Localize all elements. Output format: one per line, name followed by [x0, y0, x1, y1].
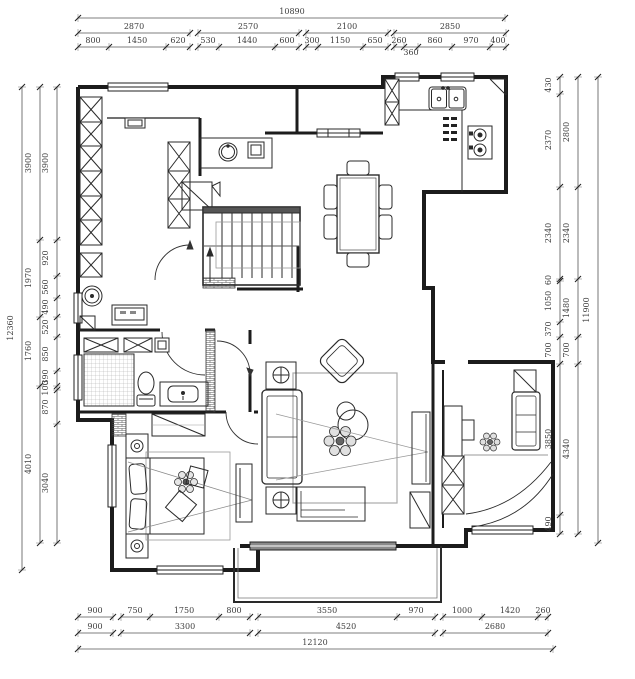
window-icon — [74, 293, 82, 323]
dim-label: 12360 — [7, 315, 15, 340]
dim-label: 530 — [200, 37, 215, 45]
cabinet-diagonal-icon — [410, 492, 430, 528]
pantry-counter — [182, 138, 272, 210]
appliance-icon — [112, 305, 147, 325]
window-icon — [472, 526, 533, 534]
window-icon — [108, 83, 168, 91]
dim-label: 12120 — [302, 639, 327, 647]
dim-label: 490 — [42, 299, 50, 314]
dim-label: 2850 — [440, 23, 460, 31]
dim-label: 3300 — [175, 623, 195, 631]
dining-set — [324, 161, 392, 267]
dim-label: 2680 — [485, 623, 505, 631]
dim-label: 11900 — [583, 297, 591, 322]
desk-icon — [444, 406, 474, 456]
window-icon — [74, 355, 82, 400]
plant-decor-icon — [480, 433, 500, 451]
wardrobe-hatch — [442, 456, 464, 514]
living-room — [262, 337, 430, 528]
wardrobe-cabinets — [80, 97, 190, 277]
dim-label: 520 — [42, 319, 50, 334]
counter-edge — [399, 110, 462, 192]
balcony-window-icon — [250, 542, 396, 550]
dim-label: 2870 — [124, 23, 144, 31]
door-arc — [217, 341, 253, 376]
dim-label: 870 — [42, 399, 50, 414]
toilet-icon — [137, 372, 155, 406]
plant-decor-icon — [324, 427, 356, 456]
tv-cabinet-icon — [412, 412, 430, 484]
door-arc — [226, 412, 258, 444]
laundry-room — [80, 286, 147, 330]
dim-label: 900 — [87, 623, 102, 631]
dim-label: 10890 — [279, 8, 304, 16]
dim-label: 970 — [463, 37, 478, 45]
bedroom — [126, 414, 252, 558]
dim-label: 1760 — [25, 341, 33, 361]
nightstand-icon — [126, 534, 148, 558]
wardrobe-icon — [152, 414, 205, 436]
side-table-icon — [266, 362, 296, 389]
sofa-icon — [512, 392, 540, 450]
washing-machine-icon — [82, 286, 102, 306]
cooktop-icon — [248, 142, 264, 158]
dim-label: 1440 — [237, 37, 257, 45]
dim-label: 1450 — [127, 37, 147, 45]
dim-label: 360 — [403, 49, 418, 57]
dim-label: 1970 — [25, 268, 33, 288]
stair-direction-arrow — [207, 248, 213, 282]
dim-label: 1480 — [563, 298, 571, 318]
window-icon — [157, 566, 223, 574]
tv-cabinet-icon — [236, 464, 252, 522]
dim-label: 370 — [545, 321, 553, 336]
dim-label: 300 — [304, 37, 319, 45]
sliding-door[interactable] — [317, 129, 360, 137]
dim-label: 650 — [367, 37, 382, 45]
dim-label: 620 — [170, 37, 185, 45]
dim-label: 1420 — [500, 607, 520, 615]
dim-label: 800 — [85, 37, 100, 45]
floor-plan-canvas: 1089028702570210028508001450620530144060… — [0, 0, 635, 679]
study-room — [442, 370, 553, 527]
dim-label: 1750 — [174, 607, 194, 615]
vent-marks — [443, 117, 457, 141]
double-sink-icon — [429, 87, 466, 110]
round-sink-icon — [219, 143, 237, 161]
cabinet-diagonal-icon — [514, 370, 536, 392]
interior-walls — [78, 87, 443, 546]
dim-label: 860 — [427, 37, 442, 45]
nightstand-icon — [126, 434, 148, 458]
dim-label: 1050 — [545, 291, 553, 311]
dim-label: 560 — [42, 279, 50, 294]
dim-label: 600 — [279, 37, 294, 45]
door-arc — [155, 241, 193, 280]
column-hatch — [385, 79, 399, 125]
window-icon — [108, 445, 116, 507]
dim-label: 2100 — [337, 23, 357, 31]
kitchen — [385, 79, 506, 192]
curtain-arcs — [464, 455, 553, 527]
dim-label: 800 — [226, 607, 241, 615]
dim-label: 490 — [545, 516, 553, 531]
dim-label: 260 — [535, 607, 550, 615]
dim-label: 3850 — [545, 429, 553, 449]
window-icon — [441, 73, 474, 81]
dim-label: 970 — [408, 607, 423, 615]
dim-label: 4340 — [563, 439, 571, 459]
wall-cabinet-icon — [125, 118, 145, 128]
sofa-icon — [262, 390, 302, 484]
dim-label: 3900 — [25, 153, 33, 173]
dimension-lines — [18, 14, 602, 653]
double-bed-icon — [126, 452, 230, 540]
corner-shelf-icon — [490, 79, 506, 95]
dim-label: 4520 — [336, 623, 356, 631]
dim-label: 2800 — [563, 122, 571, 142]
dim-label: 2340 — [563, 223, 571, 243]
side-table-icon — [266, 487, 296, 514]
dim-label: 3550 — [317, 607, 337, 615]
dim-label: 2370 — [545, 130, 553, 150]
dim-label: 430 — [545, 77, 553, 92]
dim-label: 700 — [563, 342, 571, 357]
dim-label: 100 — [42, 380, 50, 395]
dim-label: 900 — [87, 607, 102, 615]
dim-label: 750 — [127, 607, 142, 615]
dim-label: 700 — [545, 342, 553, 357]
floor-plan-drawing — [0, 0, 635, 679]
bench-icon — [297, 487, 365, 521]
dim-label: 3900 — [42, 153, 50, 173]
gas-stove-icon — [468, 126, 492, 159]
shower-grid-icon — [84, 354, 134, 406]
dim-label: 400 — [490, 37, 505, 45]
dim-label: 60 — [545, 275, 553, 285]
dim-label: 1150 — [330, 37, 350, 45]
sight-lines — [276, 414, 428, 480]
vanity-sink-icon — [160, 382, 208, 406]
dim-label: 850 — [42, 346, 50, 361]
dim-label: 2340 — [545, 223, 553, 243]
staircase — [203, 207, 300, 285]
dim-label: 3040 — [42, 473, 50, 493]
balcony — [234, 546, 441, 602]
dim-label: 1000 — [452, 607, 472, 615]
dim-label: 2570 — [238, 23, 258, 31]
armchair-icon — [318, 337, 366, 385]
dim-label: 920 — [42, 250, 50, 265]
dim-label: 4010 — [25, 454, 33, 474]
dim-label: 260 — [391, 37, 406, 45]
